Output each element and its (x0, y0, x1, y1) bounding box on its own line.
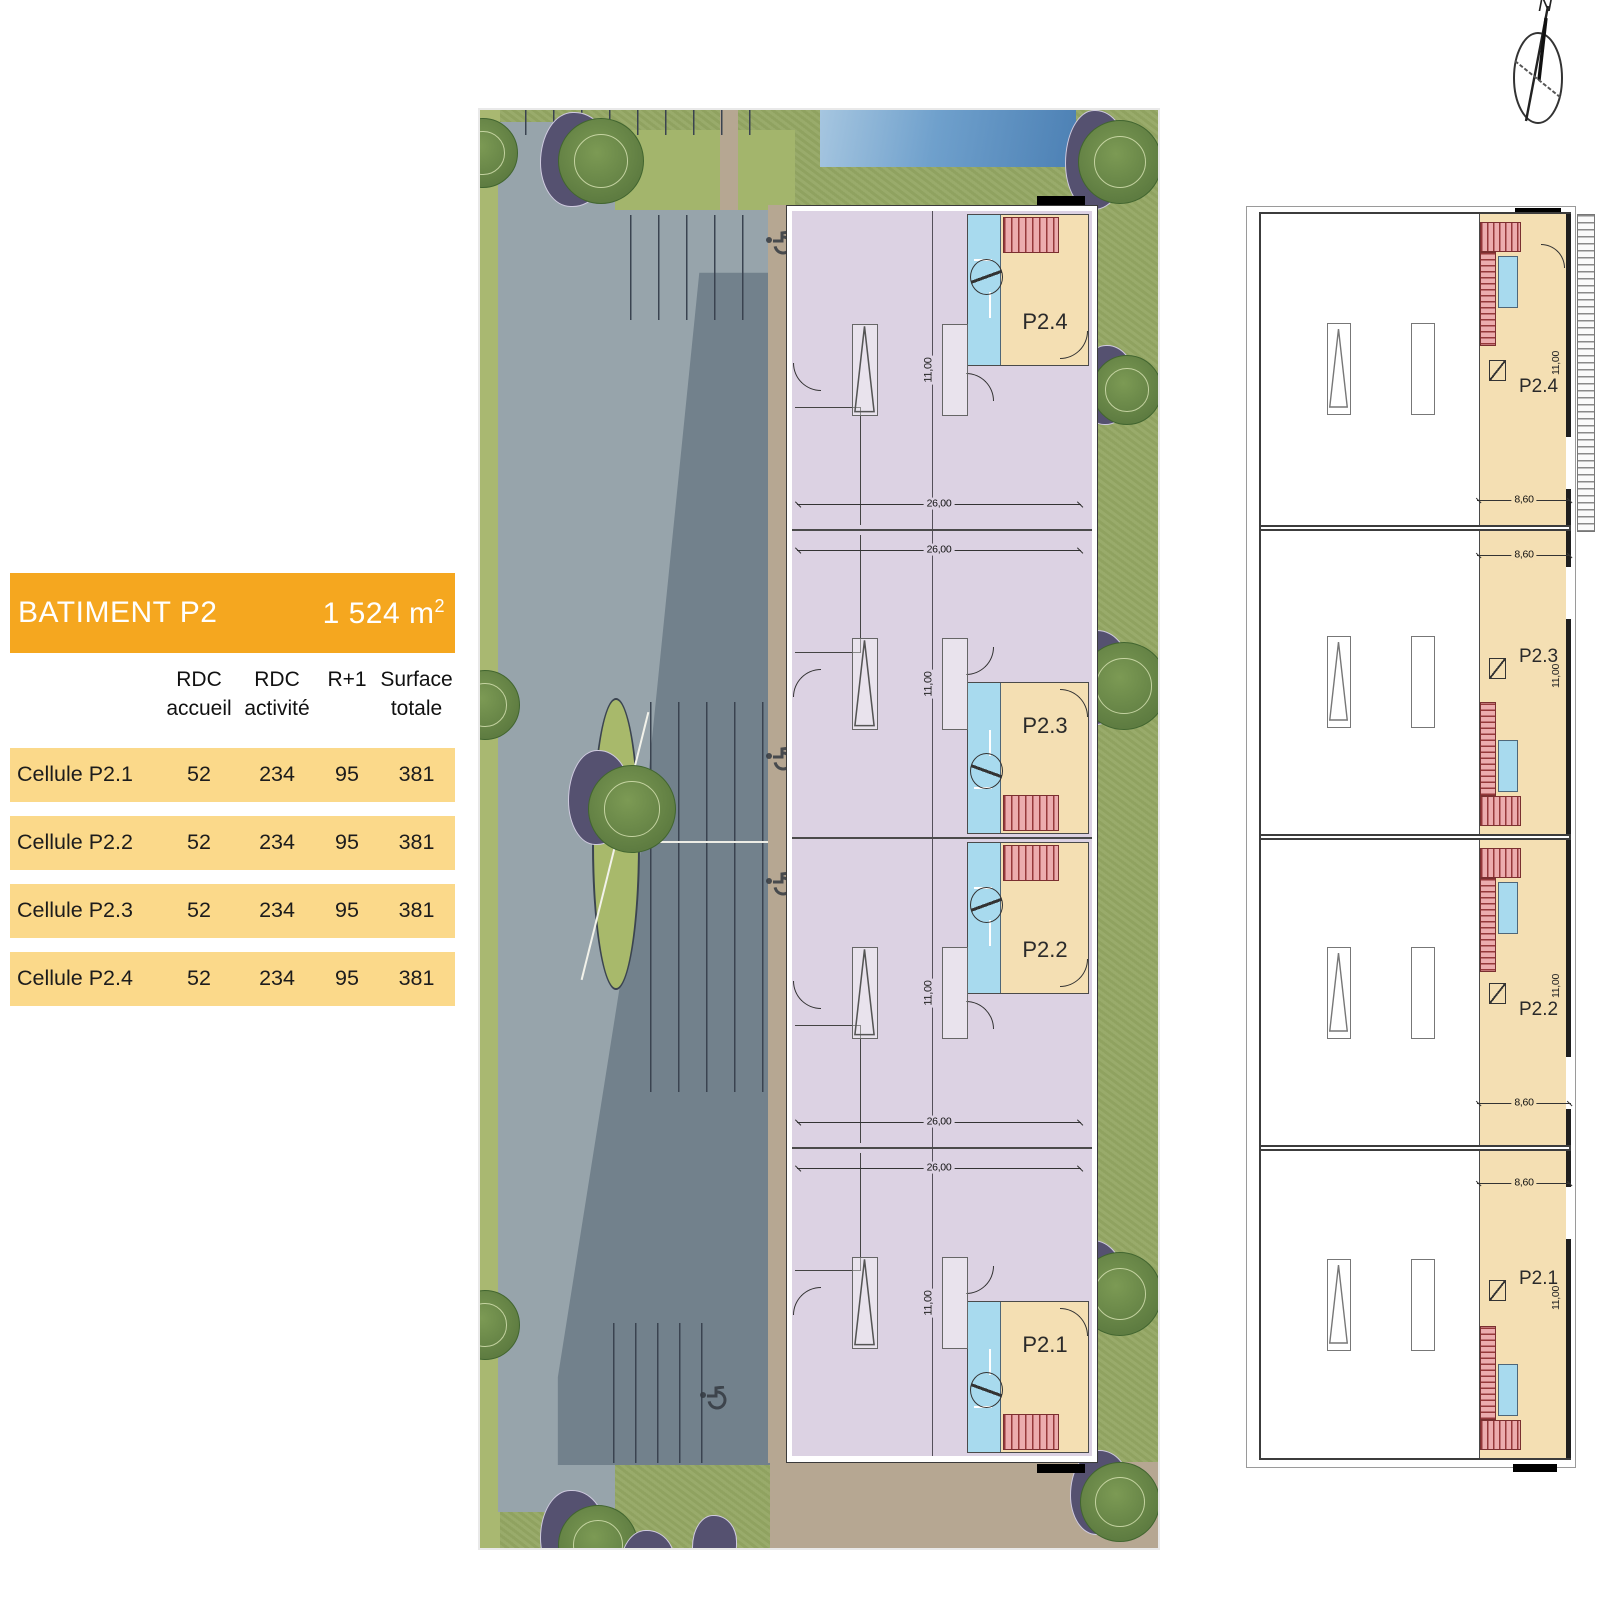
door-arc (966, 1266, 994, 1294)
accueil-area: P2.3 (967, 682, 1089, 834)
roof-opening-symbol (942, 947, 968, 1039)
table-row: Cellule P2.1 52 234 95 381 (10, 748, 455, 802)
door-arc (966, 373, 994, 401)
floor-plan-r1: P2.4 11,00 P2.3 11,00 (1245, 200, 1597, 1480)
column-header-surface-totale: Surfacetotale (378, 665, 455, 724)
water-basin-top (820, 110, 1076, 167)
door-arc (1541, 244, 1565, 268)
tree-shadow (692, 1515, 737, 1548)
tree-icon (1078, 120, 1158, 204)
stair-hatch-horizontal (1480, 796, 1521, 826)
accueil-area: P2.2 (967, 842, 1089, 994)
stair-hatch-vertical (1480, 702, 1496, 796)
door-arc (793, 981, 821, 1009)
spiral-stair (970, 753, 1003, 789)
tree-icon (1080, 1462, 1158, 1542)
entrance-canopy (1037, 1464, 1085, 1473)
stair-hatch (1003, 1414, 1059, 1450)
dimension-depth: 11,00 (1550, 662, 1562, 690)
sectional-door-symbol (852, 638, 878, 730)
table-title: BATIMENT P2 (18, 596, 217, 630)
partition-room (795, 407, 861, 525)
north-label: N (1538, 0, 1552, 17)
sectional-door-symbol (1327, 636, 1351, 728)
wheelchair-icon (698, 1386, 730, 1410)
dimension-width: 26,00 (797, 1122, 1081, 1123)
exterior-wall (1566, 531, 1571, 834)
table-column-headers: RDCaccueil RDCactivité R+1 Surfacetotale (10, 653, 455, 734)
exterior-wall (1566, 1151, 1571, 1458)
stair-hatch-vertical (1480, 1326, 1496, 1420)
roof-opening-symbol (942, 638, 968, 730)
tree-icon (558, 118, 644, 204)
r1-cell-p2-1: P2.1 11,00 (1261, 1151, 1569, 1458)
entrance-canopy (1513, 1464, 1557, 1472)
table-total-area: 1 524 m2 (323, 596, 445, 631)
stair-hatch-horizontal (1480, 848, 1521, 878)
window-symbol (1489, 1280, 1506, 1301)
dimension-width: 8,60 (1477, 500, 1571, 501)
r1-floor-area: P2.4 11,00 (1479, 214, 1569, 525)
dimension-width: 8,60 (1477, 1183, 1571, 1184)
compass-icon (1468, 0, 1598, 140)
sectional-door-symbol (1327, 1259, 1351, 1351)
door-arc (966, 1001, 994, 1029)
column-header-rdc-activite: RDCactivité (238, 665, 316, 724)
entrance-canopy (1037, 196, 1085, 205)
parking-stalls-row-2 (650, 702, 770, 1092)
stair-hatch-vertical (1480, 878, 1496, 972)
table-row: Cellule P2.4 52 234 95 381 (10, 952, 455, 1006)
dimension-width: 8,60 (1477, 555, 1571, 556)
site-cell-p2-3: P2.3 11,00 (792, 531, 1092, 839)
sectional-door-symbol (1327, 947, 1351, 1039)
window-symbol (1489, 658, 1506, 679)
facade-cladding-hatch (1577, 214, 1595, 532)
r1-cell-p2-4: P2.4 11,00 (1261, 214, 1569, 531)
stair-hatch (1003, 795, 1059, 831)
dimension-depth: 11,00 (923, 355, 935, 384)
site-cell-p2-4: P2.4 11,00 (792, 211, 1092, 531)
stair-hatch-vertical (1480, 252, 1496, 346)
accueil-area: P2.1 (967, 1301, 1089, 1453)
window-gap (1566, 1187, 1571, 1239)
exterior-wall (1566, 840, 1571, 1145)
partition-room (795, 535, 861, 653)
spiral-stair (970, 1372, 1003, 1408)
r1-floor-area: P2.1 11,00 (1479, 1151, 1569, 1458)
table-row: Cellule P2.2 52 234 95 381 (10, 816, 455, 870)
site-cell-p2-1: P2.1 11,00 (792, 1149, 1092, 1456)
dimension-width: 8,60 (1477, 1103, 1571, 1104)
table-header-bar: BATIMENT P2 1 524 m2 (10, 573, 455, 653)
architectural-sheet: { "compass": { "north_label": "N" }, "su… (0, 0, 1600, 1600)
dimension-width: 26,00 (797, 504, 1081, 505)
stair-hatch (1003, 845, 1059, 881)
sectional-door-symbol (852, 1257, 878, 1349)
site-cell-p2-2: P2.2 11,00 (792, 839, 1092, 1149)
exterior-wall (1566, 214, 1571, 525)
wc-block (1498, 882, 1518, 934)
north-arrow-compass: N (1468, 0, 1598, 140)
door-arc (793, 669, 821, 697)
window-symbol (1489, 360, 1506, 381)
sectional-door-symbol (1327, 323, 1351, 415)
sectional-door-symbol (852, 947, 878, 1039)
dimension-depth: 11,00 (923, 1288, 935, 1317)
dimension-width: 26,00 (797, 550, 1081, 551)
r1-cell-p2-3: P2.3 11,00 (1261, 531, 1569, 840)
batiment-summary-table: BATIMENT P2 1 524 m2 RDCaccueil RDCactiv… (10, 573, 455, 1006)
building-p2-footprint: P2.4 11,00 (786, 205, 1098, 1463)
r1-floor-area: P2.3 11,00 (1479, 531, 1569, 834)
door-arc (966, 647, 994, 675)
window-gap (1566, 437, 1571, 489)
table-row: Cellule P2.3 52 234 95 381 (10, 884, 455, 938)
roof-opening-symbol (1411, 323, 1435, 415)
cell-label: P2.2 (1514, 999, 1563, 1021)
window-symbol (1489, 983, 1506, 1004)
tree-icon (1092, 355, 1158, 425)
roof-opening-symbol (1411, 636, 1435, 728)
plan-body: P2.4 11,00 P2.3 11,00 (1259, 212, 1571, 1460)
site-plan: P2.4 11,00 (480, 110, 1158, 1548)
column-header-r1: R+1 (316, 665, 378, 724)
roof-opening-symbol (942, 1257, 968, 1349)
roof-opening-symbol (942, 324, 968, 416)
stair-hatch-horizontal (1480, 1420, 1521, 1450)
stair-hatch (1003, 217, 1059, 253)
dimension-depth: 11,00 (1550, 1284, 1562, 1312)
window-gap (1566, 567, 1571, 619)
dimension-depth: 11,00 (1550, 972, 1562, 1000)
spiral-stair (970, 259, 1003, 295)
accueil-area: P2.4 (967, 214, 1089, 366)
parking-stalls-row-1 (630, 215, 770, 320)
door-arc (793, 1287, 821, 1315)
roof-opening-symbol (1411, 947, 1435, 1039)
spiral-stair (970, 887, 1003, 923)
dimension-depth: 11,00 (923, 669, 935, 698)
cell-label: P2.4 (1514, 376, 1563, 398)
tree-icon (588, 765, 676, 853)
wc-block (1498, 740, 1518, 792)
wc-block (1498, 256, 1518, 308)
dimension-width: 26,00 (797, 1168, 1081, 1169)
dimension-depth: 11,00 (1550, 349, 1562, 377)
roof-opening-symbol (1411, 1259, 1435, 1351)
partition-room (795, 1153, 861, 1271)
door-arc (793, 363, 821, 391)
partition-room (795, 1025, 861, 1143)
column-header-rdc-accueil: RDCaccueil (160, 665, 238, 724)
sectional-door-symbol (852, 324, 878, 416)
wc-block (1498, 1364, 1518, 1416)
sidewalk-building (768, 205, 788, 1463)
parking-stalls-row-3 (613, 1323, 703, 1463)
stair-hatch-horizontal (1480, 222, 1521, 252)
dimension-depth: 11,00 (923, 978, 935, 1007)
